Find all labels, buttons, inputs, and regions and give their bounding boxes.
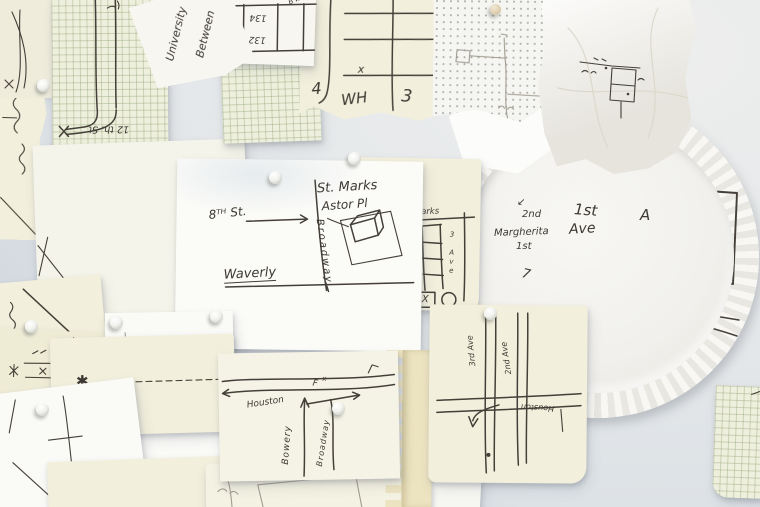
avenues-streets-sketch [428, 304, 588, 483]
photo-wall-of-maps: 12 th. St 4 WH 3 x [0, 0, 760, 507]
label-avenues-houston: Houston [521, 402, 555, 412]
pushpin [348, 152, 361, 165]
houston-streets-sketch [218, 350, 400, 481]
label-1st-st: 1st [516, 242, 532, 252]
label-x-mark: x [358, 64, 365, 75]
napkin-map [538, 0, 696, 174]
note-graph-right-edge [712, 385, 760, 499]
note-houston-map: Houston Bowery Broadway F x [218, 350, 400, 481]
label-ave-a: A [640, 208, 650, 223]
label-1st-ave-2: Ave [569, 221, 596, 236]
note-wh-grid-map: 4 WH 3 x [299, 0, 451, 121]
label-3rd: 3 [401, 88, 413, 106]
label-st-marks: St. Marks [317, 179, 378, 195]
napkin-sketch [538, 0, 696, 174]
label-between: Between [194, 9, 216, 58]
label-margherita: Margherita [494, 227, 549, 239]
pushpin [36, 403, 49, 416]
label-wh: WH [340, 90, 368, 108]
pushpin [37, 79, 50, 92]
note-dotgrid-map [432, 0, 549, 123]
grid-streets-sketch [299, 0, 451, 121]
label-plate-arrow: ↙ [517, 198, 525, 208]
pencil-streets-sketch [432, 0, 549, 123]
label-waverly: Waverly [223, 266, 276, 284]
note-avenues-map: 3rd Ave 2nd Ave Houston [428, 304, 588, 483]
pushpin [210, 310, 223, 323]
label-2nd-st: 2nd [522, 210, 541, 220]
label-134: 134 [249, 12, 266, 22]
label-132: 132 [249, 34, 266, 44]
label-astor-pl: Astor Pl [321, 197, 368, 212]
label-houston-x: x [322, 376, 326, 383]
pushpin [332, 402, 345, 415]
pushpin [484, 307, 497, 320]
tiny-mark-sketch [712, 385, 760, 499]
pushpin-tan [490, 4, 501, 15]
label-1st-ave-1: 1st [574, 202, 598, 219]
label-12th-st: 12 th. St [88, 124, 129, 134]
label-ladder-x: X [422, 295, 429, 305]
label-3-ave: 3 Ave [447, 231, 455, 285]
pushpin [269, 171, 282, 184]
label-university: University [164, 6, 188, 63]
pushpin [110, 316, 123, 329]
pushpin [25, 320, 38, 333]
label-4th: 4 [311, 81, 322, 98]
